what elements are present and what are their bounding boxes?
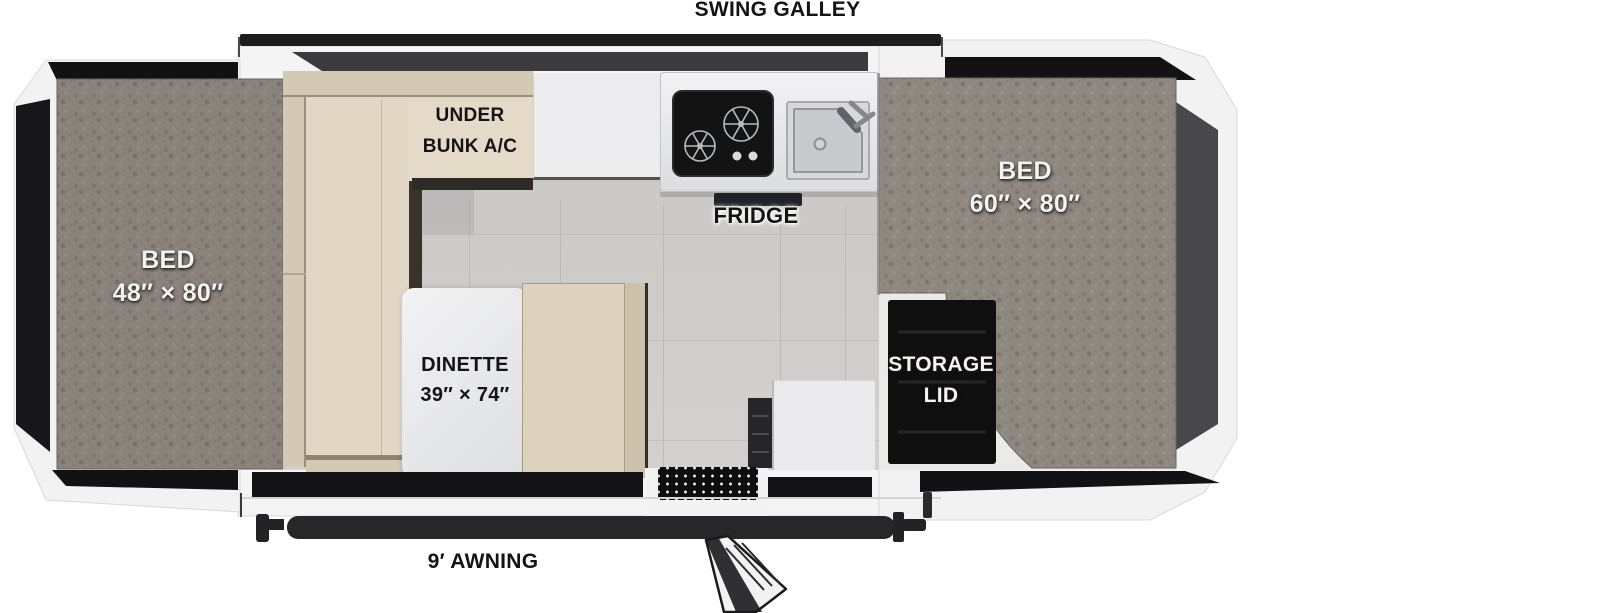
storage-line2: LID: [861, 380, 1021, 411]
bench-back-left: [283, 97, 306, 467]
awning-bracket-right-arm: [902, 519, 926, 531]
bench-kick-panel: [306, 460, 409, 472]
cabinet-shadow: [422, 188, 474, 234]
storage-line1: STORAGE: [861, 349, 1021, 380]
awning-label: 9′ AWNING: [383, 550, 583, 574]
sill-edge: [240, 497, 941, 499]
dinette-bench-seat: [522, 283, 625, 478]
dinette-line2: 39″ × 74″: [395, 380, 535, 410]
awning-bracket-pin: [923, 492, 932, 518]
awning-text: 9′ AWNING: [383, 550, 583, 574]
rear-bed-line1: BED: [920, 155, 1130, 188]
sill-end-cap: [240, 493, 242, 517]
dinette-label: DINETTE 39″ × 74″: [395, 350, 535, 410]
awning-rail: [287, 516, 895, 539]
under-bunk-line1: UNDER: [400, 100, 540, 131]
swing-galley-text: SWING GALLEY: [640, 0, 915, 20]
rail-end-cap-left: [238, 37, 240, 57]
swing-galley-rail: [240, 34, 941, 46]
front-bed-line1: BED: [63, 244, 273, 277]
drawer-line: [752, 451, 769, 453]
under-bunk-line2: BUNK A/C: [400, 131, 540, 162]
awning-bracket-left-arm: [268, 519, 284, 530]
entry-step-grate: [658, 467, 758, 500]
bench-seat: [306, 97, 409, 459]
galley-cabinet: [533, 73, 660, 180]
rear-tent-top: [945, 57, 1196, 80]
rear-end-panel: [1176, 102, 1218, 450]
bench-back-top: [283, 71, 533, 97]
rear-tent-bottom: [920, 471, 1220, 492]
entry-door-open: [706, 536, 786, 612]
floor-mat-right: [768, 477, 872, 497]
front-bed-line2: 48″ × 80″: [63, 277, 273, 310]
dinette-bench-back: [625, 283, 648, 478]
front-tent-bottom: [52, 470, 238, 490]
front-tent-top: [48, 62, 238, 95]
front-bed-label: BED 48″ × 80″: [63, 244, 273, 310]
drawer-line: [752, 433, 769, 435]
tile-seam: [663, 205, 664, 470]
floorplan-canvas: SWING GALLEY BED 48″ × 80″ BED 60″ × 80″…: [0, 0, 1600, 613]
under-bunk-ac-label: UNDER BUNK A/C: [400, 100, 540, 162]
fridge-text: FRIDGE: [676, 203, 836, 229]
storage-lid-label: STORAGE LID: [861, 349, 1021, 411]
fridge-label: FRIDGE: [676, 203, 836, 229]
two-burner-cooktop: [672, 90, 774, 177]
front-tent-side: [16, 99, 50, 452]
roof-shadow: [292, 52, 868, 71]
dinette-line1: DINETTE: [395, 350, 535, 380]
entry-cabinet: [772, 380, 875, 470]
cushion-seam: [381, 100, 382, 455]
rear-bed-label: BED 60″ × 80″: [920, 155, 1130, 221]
rear-bed-endcap: [879, 40, 1237, 520]
under-bunk-ac-recess: [412, 178, 533, 190]
swing-galley-label: SWING GALLEY: [640, 0, 915, 20]
counter-bed-divider: [877, 73, 880, 295]
rail-end-cap-right: [941, 37, 943, 57]
floor-mat-left: [252, 472, 643, 497]
drawer-line: [752, 415, 769, 417]
cushion-seam: [283, 273, 306, 275]
rear-bed-line2: 60″ × 80″: [920, 188, 1130, 221]
